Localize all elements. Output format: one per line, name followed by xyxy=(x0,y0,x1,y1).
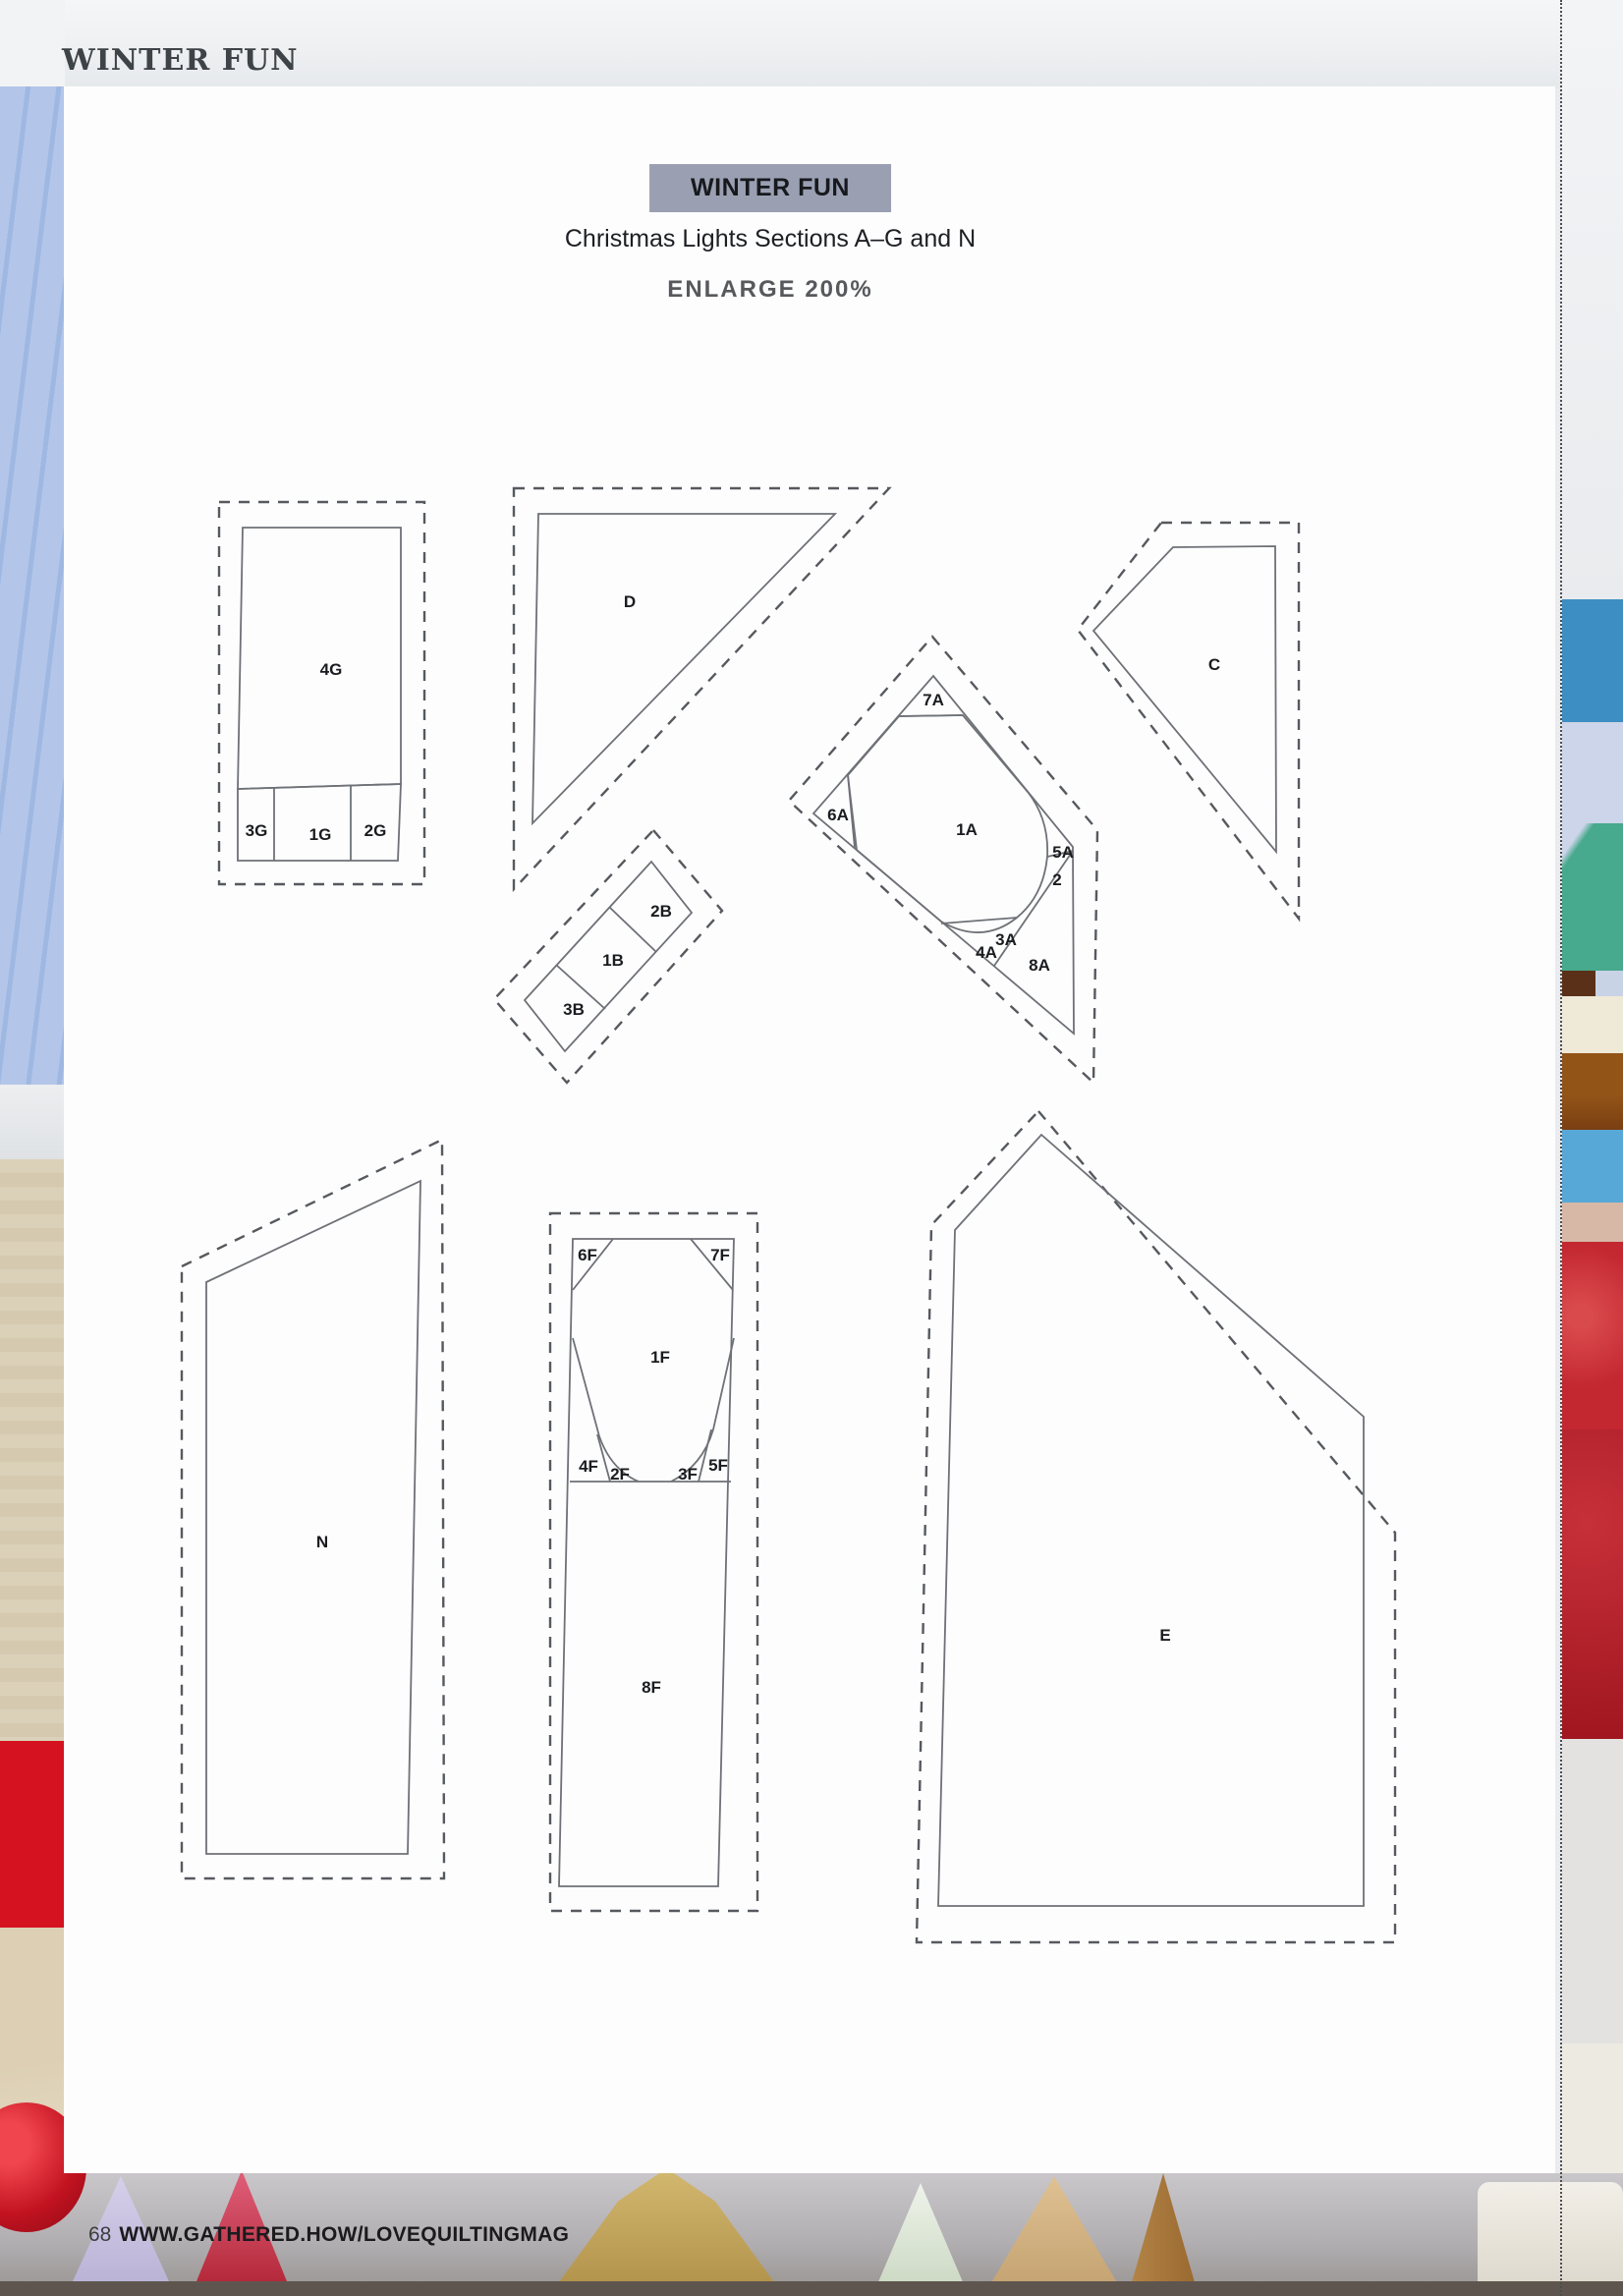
piece-d xyxy=(532,514,835,823)
seam-2b-1b xyxy=(609,907,656,952)
section-a-outline xyxy=(813,676,1074,1034)
label-6f: 6F xyxy=(578,1246,597,1264)
template-section-n: N xyxy=(182,1140,444,1878)
label-8a: 8A xyxy=(1029,956,1050,975)
label-5a: 5A xyxy=(1052,843,1074,862)
label-4a: 4A xyxy=(976,943,997,962)
label-5f: 5F xyxy=(708,1456,728,1475)
label-3g: 3G xyxy=(246,821,268,840)
label-8f: 8F xyxy=(642,1678,661,1697)
label-3f: 3F xyxy=(678,1465,698,1484)
magazine-url: WWW.GATHERED.HOW/LOVEQUILTINGMAG xyxy=(119,2223,569,2246)
label-4f: 4F xyxy=(579,1457,598,1476)
label-c: C xyxy=(1208,655,1220,674)
label-1a: 1A xyxy=(956,820,978,839)
seam-2f xyxy=(597,1434,610,1482)
label-7f: 7F xyxy=(710,1246,730,1264)
label-2b: 2B xyxy=(650,902,672,921)
piece-c xyxy=(1093,546,1276,852)
label-2g: 2G xyxy=(364,821,387,840)
section-f-outline xyxy=(559,1239,734,1886)
template-section-b: 2B 1B 3B xyxy=(494,830,722,1083)
seam-3a xyxy=(941,918,1017,924)
template-section-c: C xyxy=(1078,523,1299,919)
template-section-a: 7A 6A 1A 5A 2 3A 4A 8A xyxy=(789,637,1097,1083)
piece-n xyxy=(206,1181,420,1854)
piece-e xyxy=(938,1135,1364,1906)
label-4g: 4G xyxy=(320,660,343,679)
templates-drawing: 4G 3G 1G 2G D C 7A 6A xyxy=(0,0,1623,2296)
page-number: 68 xyxy=(88,2223,111,2246)
label-2: 2 xyxy=(1052,870,1061,889)
label-1b: 1B xyxy=(602,951,624,970)
section-c-seam-allowance xyxy=(1078,523,1299,919)
label-3b: 3B xyxy=(563,1000,585,1019)
label-2f: 2F xyxy=(610,1465,630,1484)
template-section-e: E xyxy=(917,1111,1395,1942)
magazine-page: WINTER FUN WINTER FUN Christmas Lights S… xyxy=(0,0,1623,2296)
piece-4g xyxy=(238,528,401,789)
template-section-f: 6F 7F 1F 4F 2F 3F 5F 8F xyxy=(550,1213,757,1911)
template-section-g: 4G 3G 1G 2G xyxy=(219,502,424,884)
label-e: E xyxy=(1159,1626,1170,1645)
piece-1a-bulb xyxy=(848,715,1047,932)
label-d: D xyxy=(624,592,636,611)
label-n: N xyxy=(316,1533,328,1551)
label-3a: 3A xyxy=(995,930,1017,949)
section-n-seam-allowance xyxy=(182,1140,444,1878)
label-6a: 6A xyxy=(827,806,849,824)
label-1f: 1F xyxy=(650,1348,670,1367)
label-7a: 7A xyxy=(923,691,944,709)
page-footer: 68WWW.GATHERED.HOW/LOVEQUILTINGMAG xyxy=(88,2223,569,2247)
label-1g: 1G xyxy=(309,825,332,844)
